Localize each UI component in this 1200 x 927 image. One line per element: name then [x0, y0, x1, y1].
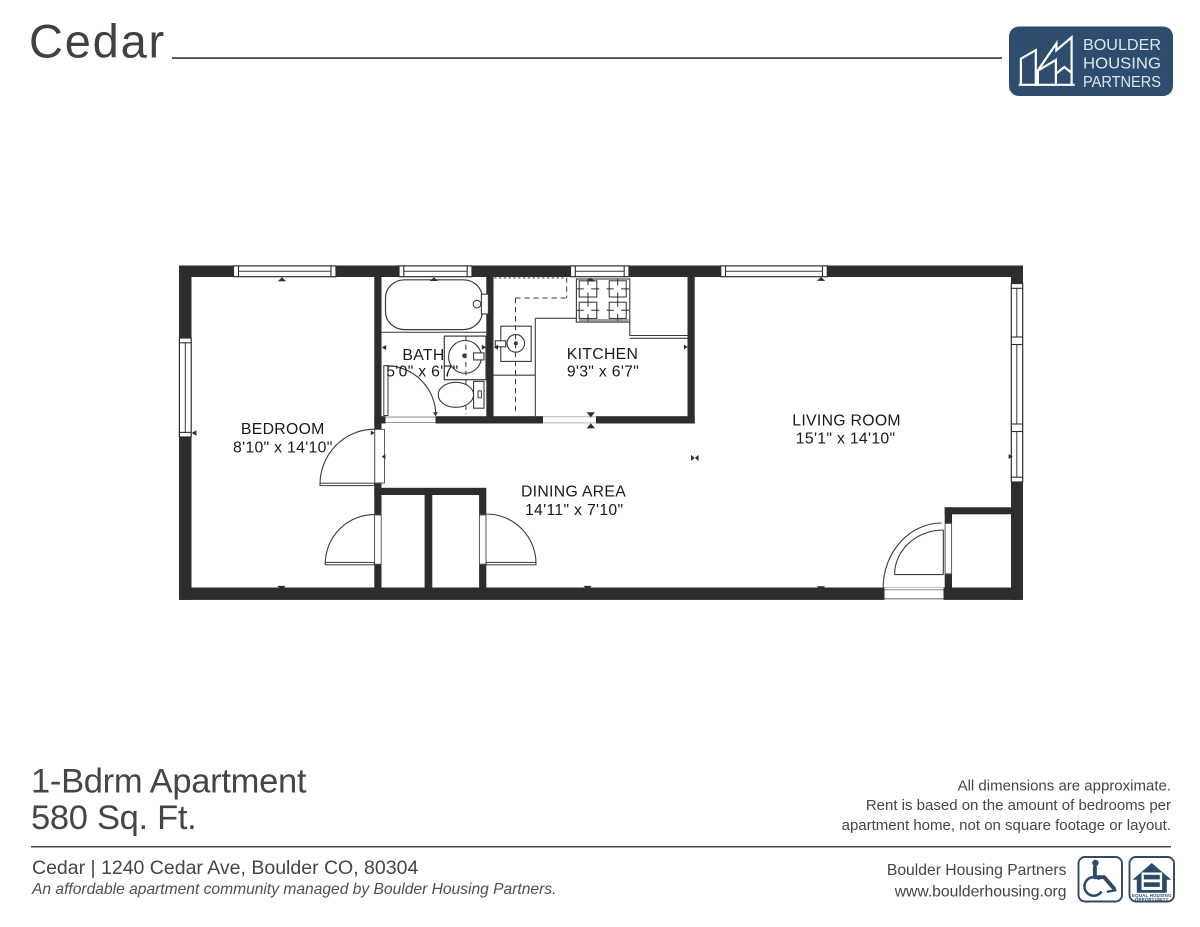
- svg-text:An affordable apartment commun: An affordable apartment community manage…: [31, 881, 556, 898]
- svg-text:15'1" x 14'10": 15'1" x 14'10": [796, 430, 896, 447]
- svg-text:8'10" x 14'10": 8'10" x 14'10": [233, 439, 333, 456]
- svg-text:OPPORTUNITY: OPPORTUNITY: [1135, 897, 1169, 902]
- svg-text:BOULDER: BOULDER: [1083, 37, 1161, 54]
- svg-text:Boulder Housing Partners: Boulder Housing Partners: [887, 862, 1067, 879]
- svg-text:Rent is based on the amount of: Rent is based on the amount of bedrooms …: [866, 797, 1171, 814]
- svg-text:1-Bdrm Apartment: 1-Bdrm Apartment: [31, 763, 307, 801]
- svg-text:580 Sq. Ft.: 580 Sq. Ft.: [31, 799, 196, 837]
- svg-text:www.boulderhousing.org: www.boulderhousing.org: [894, 883, 1067, 900]
- svg-text:DINING AREA: DINING AREA: [521, 484, 626, 501]
- svg-text:BEDROOM: BEDROOM: [241, 421, 325, 438]
- svg-text:LIVING ROOM: LIVING ROOM: [792, 413, 901, 430]
- svg-text:HOUSING: HOUSING: [1083, 56, 1161, 73]
- svg-text:apartment home, not on square: apartment home, not on square footage or…: [842, 817, 1171, 834]
- svg-text:Cedar: Cedar: [29, 15, 166, 68]
- svg-text:Cedar | 1240 Cedar Ave, Boulde: Cedar | 1240 Cedar Ave, Boulder CO, 8030…: [32, 857, 418, 879]
- svg-text:5'0" x 6'7": 5'0" x 6'7": [386, 364, 458, 381]
- svg-text:9'3" x 6'7": 9'3" x 6'7": [567, 364, 639, 381]
- svg-text:PARTNERS: PARTNERS: [1083, 74, 1161, 91]
- svg-text:All dimensions are approximate: All dimensions are approximate.: [958, 777, 1171, 794]
- svg-text:KITCHEN: KITCHEN: [567, 346, 638, 363]
- svg-text:14'11" x 7'10": 14'11" x 7'10": [525, 502, 623, 519]
- svg-text:BATH: BATH: [402, 347, 444, 364]
